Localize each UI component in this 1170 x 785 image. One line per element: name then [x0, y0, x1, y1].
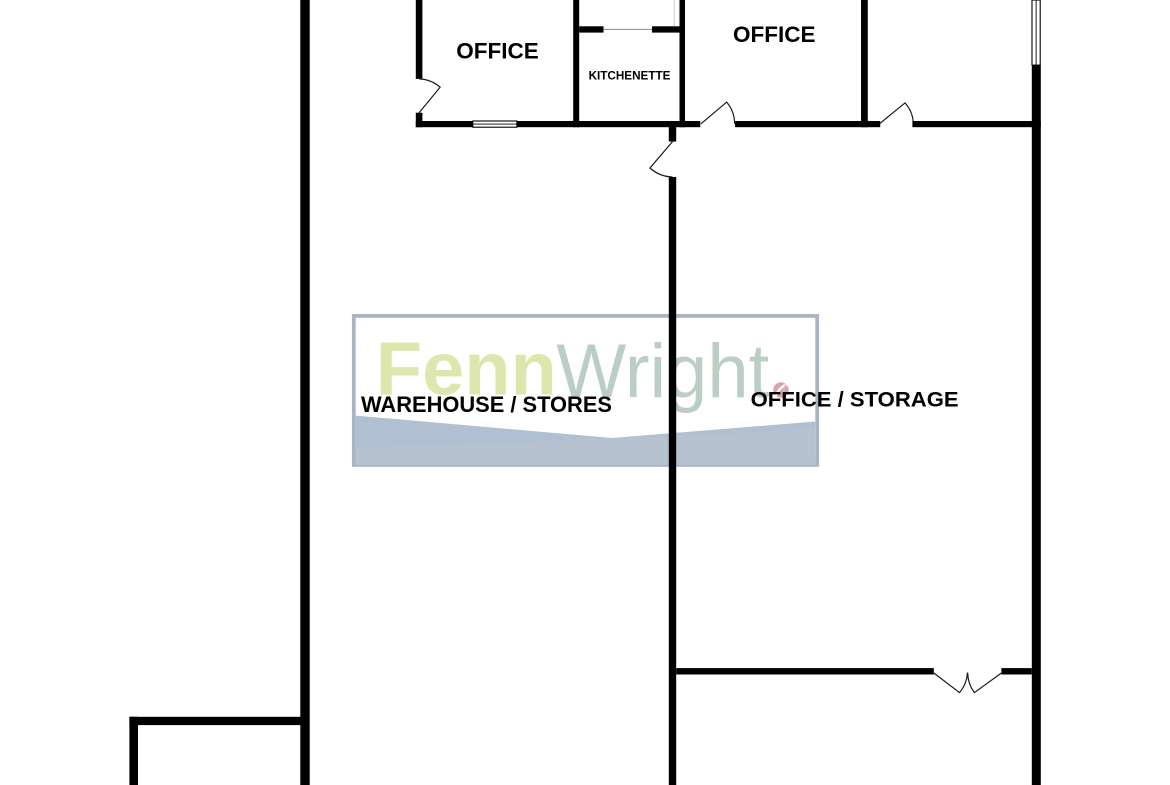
- svg-text:KITCHENETTE: KITCHENETTE: [589, 70, 671, 83]
- svg-text:OFFICE: OFFICE: [733, 22, 816, 47]
- svg-text:WAREHOUSE / STORES: WAREHOUSE / STORES: [361, 392, 612, 417]
- svg-text:OFFICE / STORAGE: OFFICE / STORAGE: [751, 389, 959, 412]
- svg-text:OFFICE: OFFICE: [456, 39, 539, 64]
